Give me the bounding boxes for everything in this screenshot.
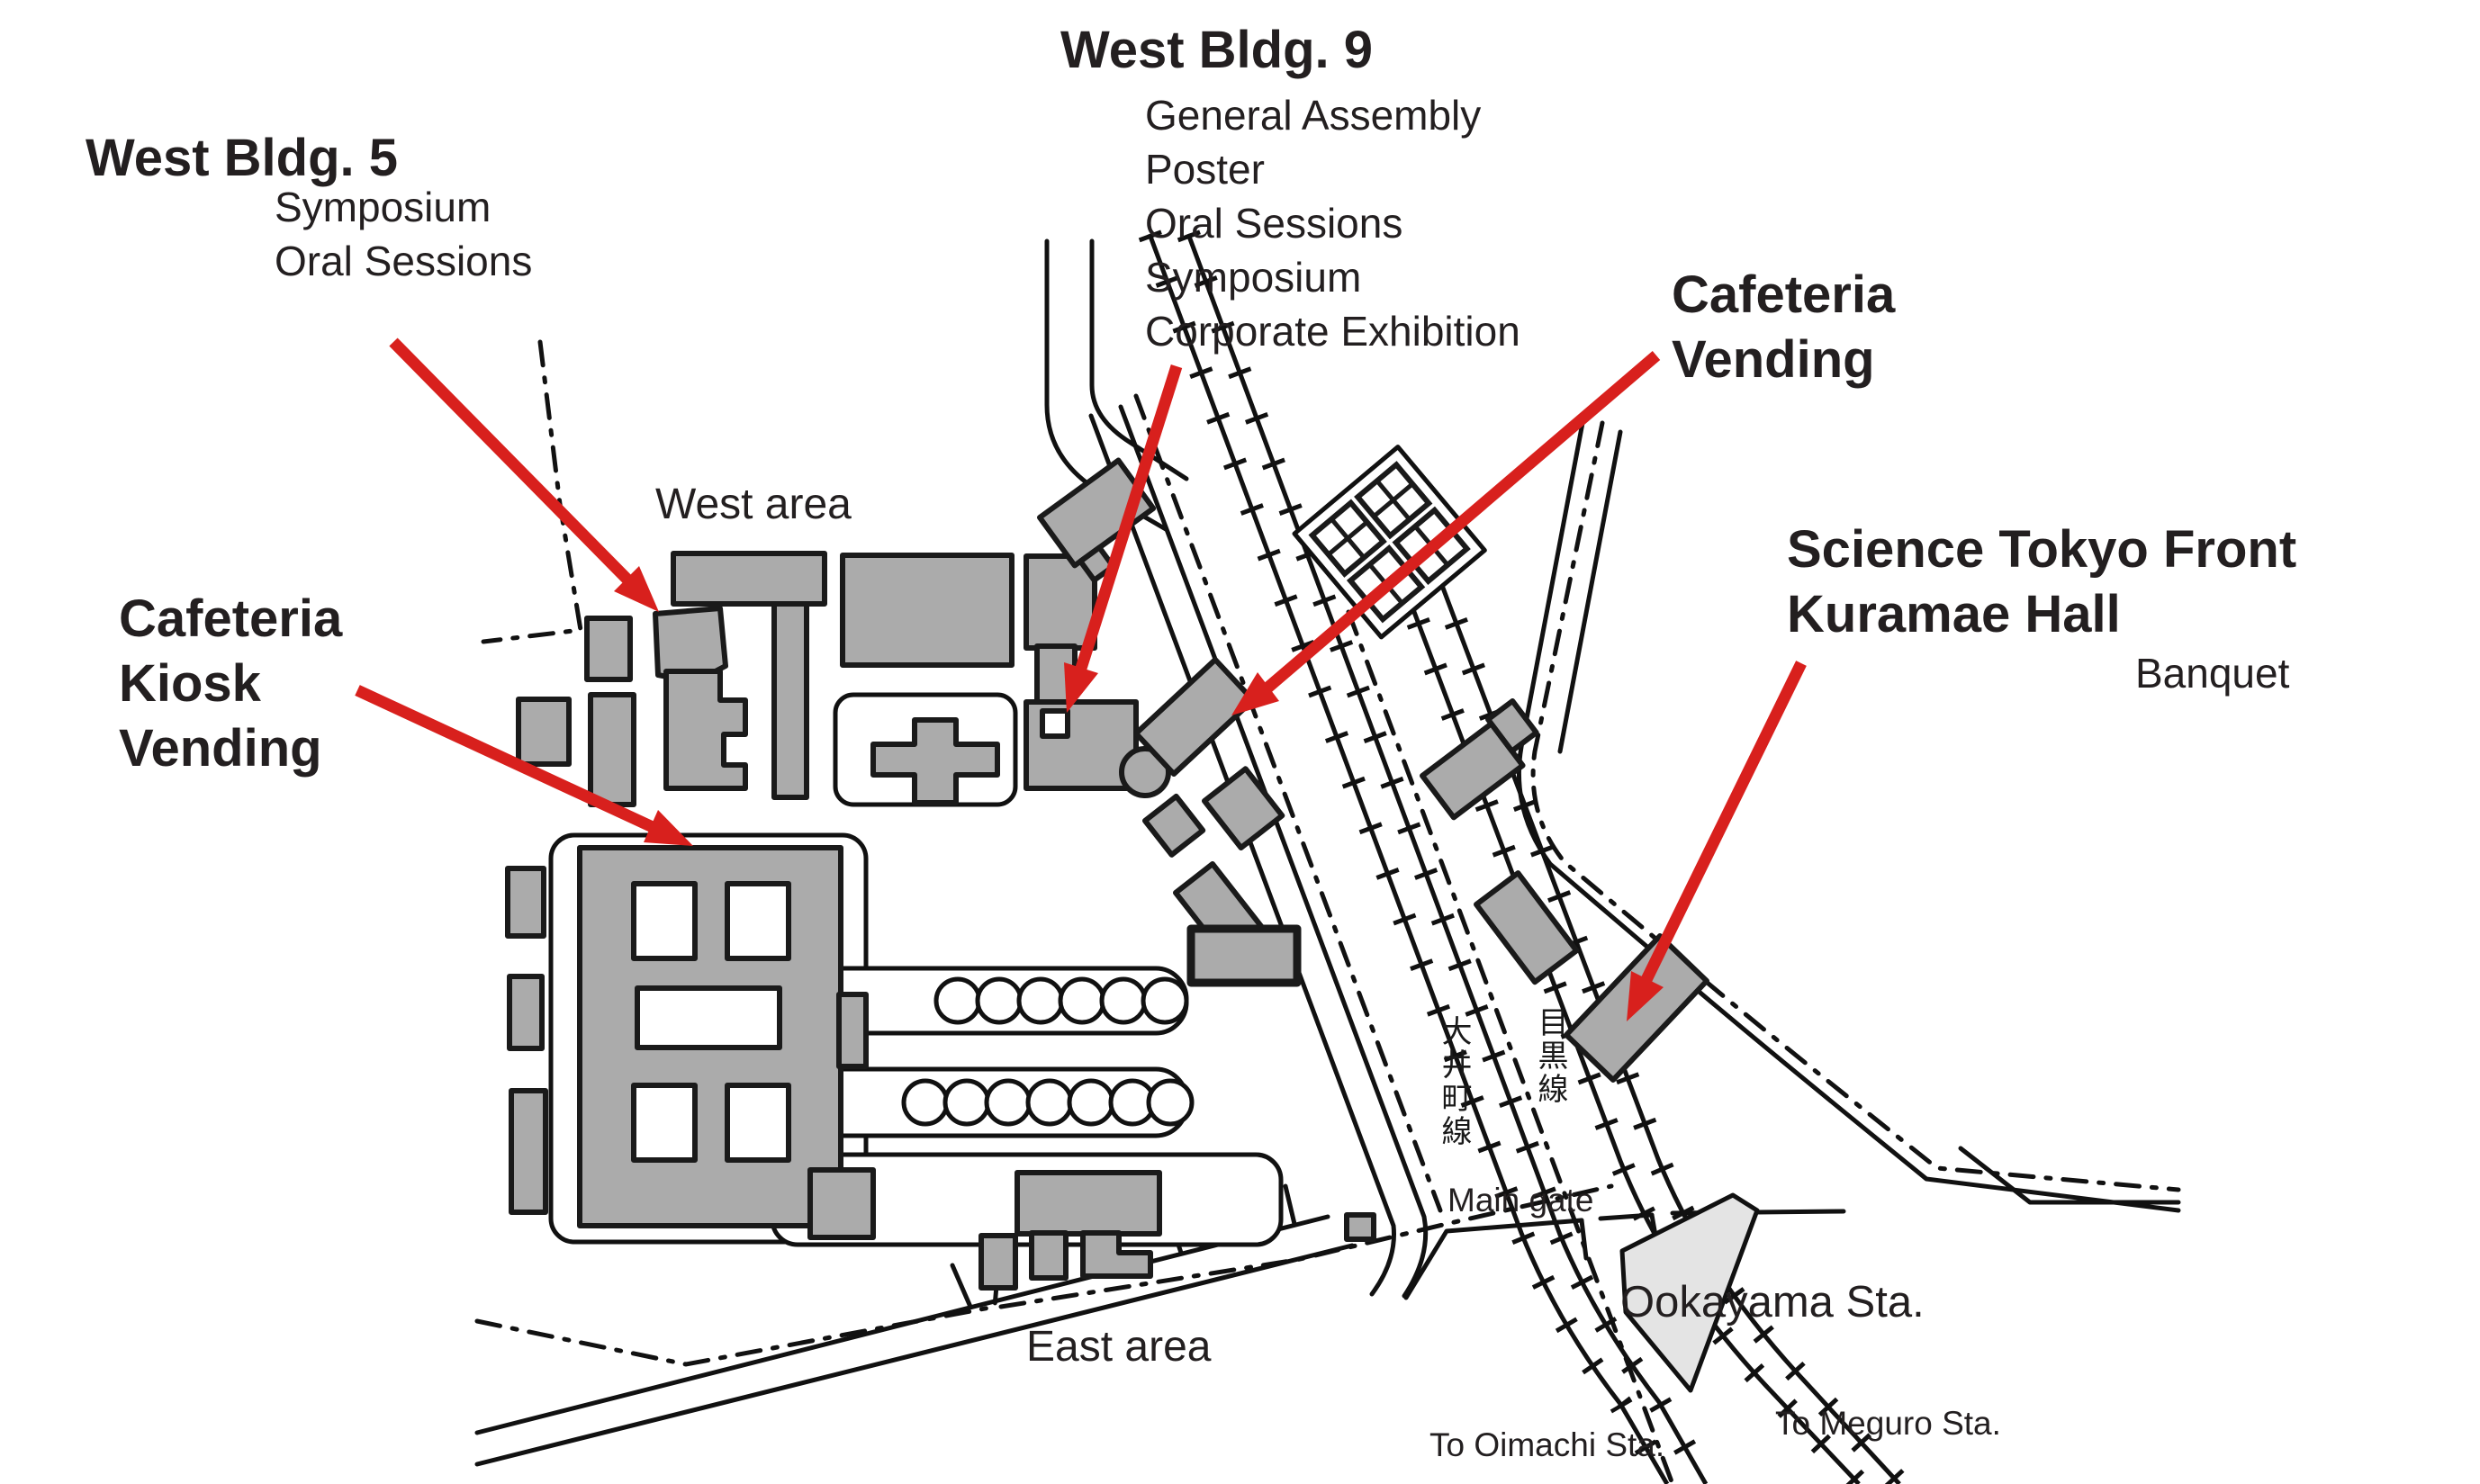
tree-rows — [904, 979, 1192, 1124]
west-bldg-9-title: West Bldg. 9 — [1060, 18, 1373, 83]
label-west-bldg-5-items: Symposium Oral Sessions — [275, 180, 532, 288]
label-east-area: East area — [1026, 1321, 1211, 1373]
label-west-area: West area — [655, 479, 852, 531]
label-cafeteria-vending: Cafeteria Vending — [1672, 263, 1895, 392]
building-west5-bar — [673, 553, 825, 604]
label-to-meguro-station: To Meguro Sta. — [1775, 1404, 2001, 1444]
building-near-main-gate — [1347, 1215, 1374, 1239]
label-west-bldg-9-items: General Assembly Poster Oral Sessions Sy… — [1145, 88, 1520, 358]
label-science-tokyo-front: Science Tokyo Front Kuramae Hall — [1787, 517, 2296, 647]
campus-access-map: 大井町線 目黒線 — [0, 0, 2480, 1484]
label-cafeteria-kiosk-vending: Cafeteria Kiosk Vending — [119, 587, 342, 781]
hatched-compound — [1294, 447, 1484, 637]
arrow-west-bldg-5 — [393, 342, 659, 612]
label-west-bldg-9: West Bldg. 9 — [1060, 18, 1373, 83]
label-ookayama-station: Ookayama Sta. — [1620, 1276, 1925, 1329]
arrow-kuramae-hall — [1627, 663, 1801, 1021]
label-banquet: Banquet — [2135, 646, 2289, 700]
building-west-bldg-9 — [1026, 556, 1168, 796]
meguro-line-label: 目黒線 — [1532, 1006, 1568, 1106]
label-main-gate: Main gate — [1447, 1181, 1594, 1220]
label-to-oimachi-station: To Oimachi Sta. — [1429, 1426, 1664, 1465]
oimachi-line-label: 大井町線 — [1436, 1015, 1472, 1148]
